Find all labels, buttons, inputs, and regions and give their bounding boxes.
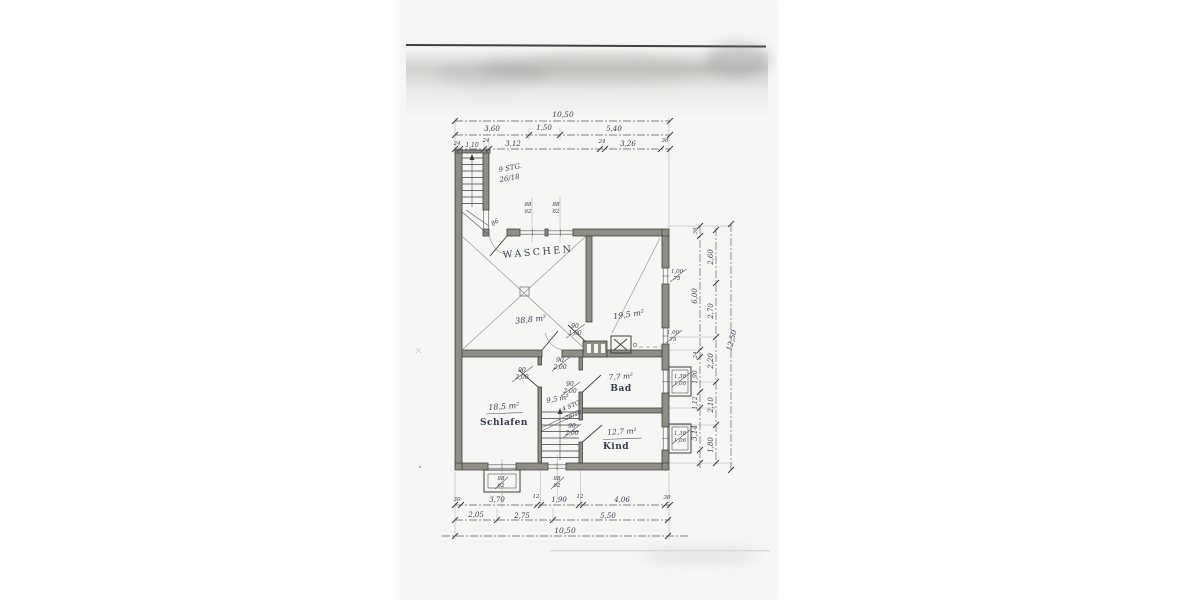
stray-mark (416, 348, 421, 353)
kind-door-leaf (583, 425, 603, 442)
entry-door-size: 86 (490, 217, 500, 227)
scan-edge-line (406, 45, 766, 47)
window-top2-w: 88 (553, 202, 560, 208)
hall-door-swing (545, 333, 562, 350)
room-name-kind: Kind (603, 442, 629, 452)
vent-circle-icon (633, 343, 637, 347)
bad-door-leaf (583, 375, 602, 392)
dim-label: 24 (482, 138, 490, 144)
dim-label: 2,20 (707, 353, 715, 370)
dim-label: 1,10 (465, 142, 479, 149)
dim-label: 1,80 (707, 437, 715, 453)
bad-door-h: 2,00 (562, 388, 577, 395)
dim-label: 1,90 (551, 496, 567, 504)
room-area-kind: 12,7 m² (607, 426, 637, 437)
dim-top-total: 10,50 (552, 110, 574, 119)
label-underline (486, 413, 523, 415)
window-right2-w: 1,00 (667, 330, 680, 336)
dim-label: 36 (662, 138, 669, 144)
room-name-bad: Bad (610, 384, 631, 394)
stray-dot (419, 466, 421, 468)
dim-label: 3,14 (691, 425, 699, 441)
exterior-stair-label-1: 9 STG. (498, 162, 523, 174)
room-area-right: 19,5 m² (613, 308, 645, 321)
dim-label: 12 (577, 494, 584, 500)
dim-label: 1,90 (692, 370, 699, 384)
dim-label: 30 (664, 495, 671, 501)
flue-opening (594, 344, 598, 353)
room-area-schlafen: 18,5 m² (488, 401, 520, 412)
dim-label: 30 (454, 497, 461, 503)
window-top1-h: 62 (525, 209, 532, 215)
dim-label: 2,70 (707, 303, 715, 320)
paper-bottom-edge (550, 550, 770, 551)
floor-plan-drawing: WASCHEN 38,8 m² 19,5 m² 7,7 m² Bad 9,5 m… (400, 0, 777, 600)
dim-label: 6,00 (691, 288, 699, 304)
room-area-waschen: 38,8 m² (515, 313, 547, 325)
dim-label: 24 (693, 351, 699, 359)
dim-label: 3,60 (484, 125, 500, 133)
scanned-floor-plan-page: WASCHEN 38,8 m² 19,5 m² 7,7 m² Bad 9,5 m… (400, 0, 777, 600)
dim-label: 24 (598, 139, 606, 145)
dim-label: 24 (453, 141, 461, 147)
roof-apex-square (520, 287, 529, 296)
schlafen-door-w: 90 (518, 367, 526, 374)
dim-label: 1,12 (692, 396, 699, 410)
dimension-chain-bottom: 30 3,70 12 1,90 12 4,06 30 2,05 2,75 5,5… (442, 470, 688, 540)
dim-label: 12 (533, 494, 540, 500)
dim-label: 2,75 (513, 512, 530, 520)
screenshot-canvas: WASCHEN 38,8 m² 19,5 m² 7,7 m² Bad 9,5 m… (0, 0, 1200, 600)
flue-opening (601, 344, 605, 353)
window-right1-h: 75 (674, 276, 681, 282)
dim-label: 2,05 (467, 511, 484, 519)
room-name-schlafen: Schlafen (480, 418, 528, 428)
exterior-stair-label-2: 26/18 (498, 172, 521, 184)
stair-direction-arrow (470, 154, 475, 160)
window-right2-h: 75 (670, 337, 677, 343)
room-name-waschen: WASCHEN (502, 244, 574, 261)
dim-label: 2,10 (707, 397, 715, 414)
window-top1-w: 88 (525, 202, 532, 208)
dim-label: 5,50 (600, 512, 616, 520)
flue-cross-icon (614, 339, 627, 350)
dim-label: 3,26 (620, 140, 636, 148)
dim-label: 2,60 (707, 249, 715, 266)
dim-label: 4,06 (613, 496, 630, 504)
dim-label: 5,40 (606, 125, 622, 133)
hall-door-leaf (542, 331, 558, 350)
scan-smudges (437, 42, 770, 563)
window-top2-h: 62 (553, 209, 560, 215)
window-right1-w: 1,00 (671, 269, 684, 275)
flue-opening (587, 344, 591, 353)
dim-label: 3,12 (505, 140, 521, 148)
dim-label: 3,70 (489, 496, 505, 504)
dim-label: 36 (693, 227, 699, 234)
room-area-bad: 7,7 m² (608, 371, 633, 382)
dim-right-total: 12,50 (724, 329, 738, 352)
label-underline (603, 438, 642, 440)
dim-label: 1,50 (536, 124, 552, 132)
dim-bottom-total: 10,50 (554, 526, 576, 535)
